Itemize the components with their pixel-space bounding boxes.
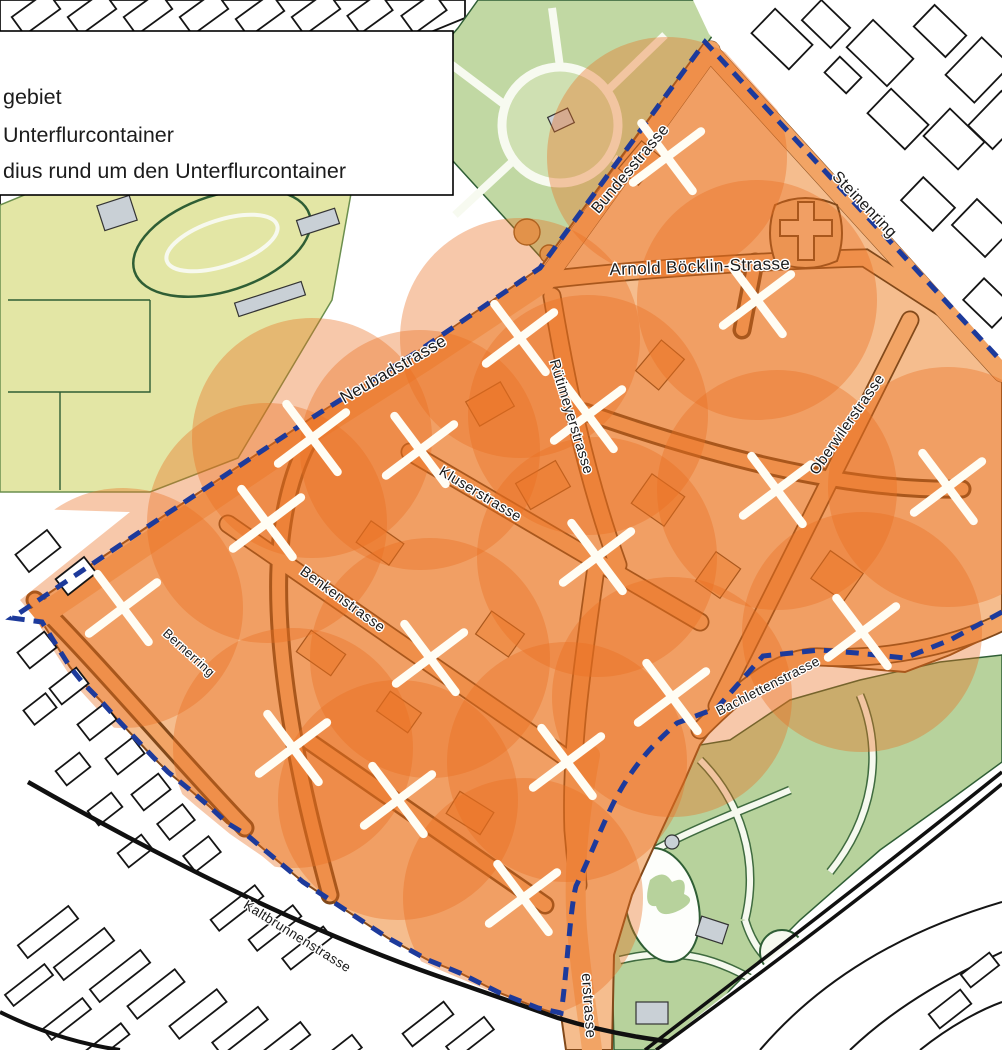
legend-item-radius: dius rund um den Unterflurcontainer [3, 159, 346, 183]
map-canvas: BundesstrasseSteinenringArnold Böcklin-S… [0, 0, 1002, 1050]
map-screenshot: BundesstrasseSteinenringArnold Böcklin-S… [0, 0, 1002, 1050]
legend-item-container-location: Unterflurcontainer [3, 123, 174, 147]
legend-item-pilot-area: gebiet [3, 85, 62, 109]
legend: gebiet Unterflurcontainer dius rund um d… [0, 31, 453, 195]
